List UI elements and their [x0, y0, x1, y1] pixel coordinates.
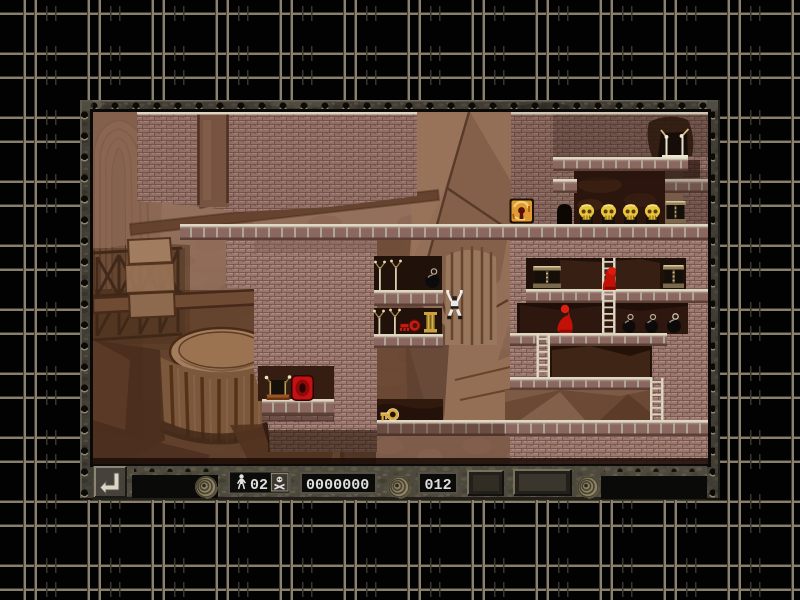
svg-text:02: 02 [250, 477, 268, 494]
svg-text:012: 012 [425, 477, 452, 494]
svg-text:0000000: 0000000 [306, 477, 369, 494]
